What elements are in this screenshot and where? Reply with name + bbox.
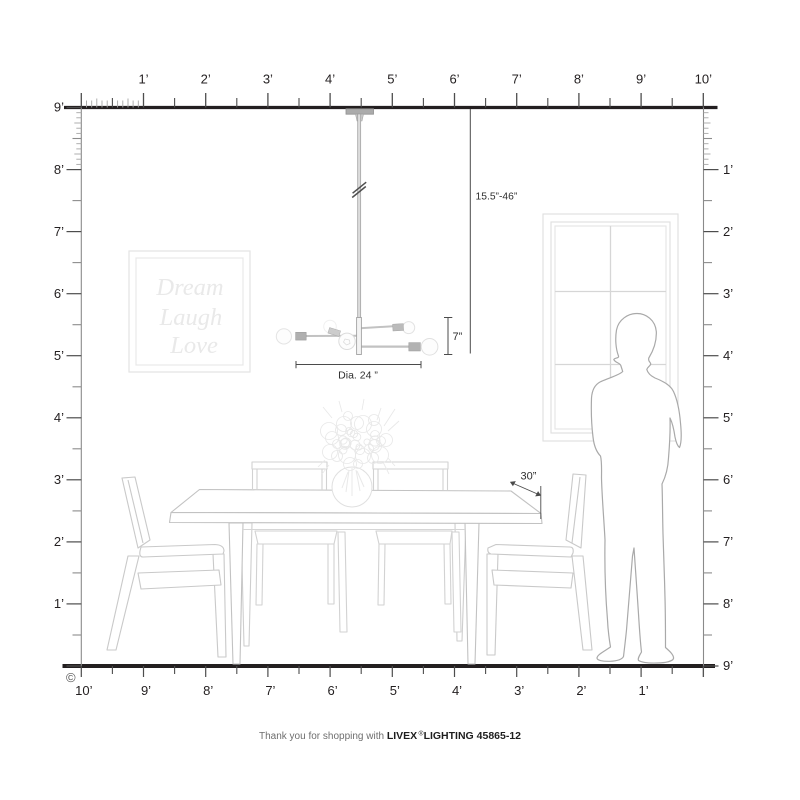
svg-text:2’: 2’ bbox=[54, 534, 64, 549]
svg-text:9’: 9’ bbox=[723, 658, 733, 673]
svg-text:8’: 8’ bbox=[723, 596, 733, 611]
svg-text:10’: 10’ bbox=[695, 72, 712, 87]
svg-text:9’: 9’ bbox=[636, 72, 646, 87]
svg-text:1’: 1’ bbox=[54, 596, 64, 611]
svg-text:9’: 9’ bbox=[54, 100, 64, 115]
svg-text:7”: 7” bbox=[453, 331, 463, 343]
svg-text:Dia. 24 ”: Dia. 24 ” bbox=[338, 370, 378, 382]
svg-text:1’: 1’ bbox=[639, 683, 649, 698]
svg-text:Laugh: Laugh bbox=[159, 304, 223, 331]
svg-text:4’: 4’ bbox=[325, 72, 335, 87]
svg-text:1’: 1’ bbox=[138, 72, 148, 87]
svg-text:3’: 3’ bbox=[723, 286, 733, 301]
svg-text:4’: 4’ bbox=[54, 410, 64, 425]
svg-text:30”: 30” bbox=[521, 471, 537, 483]
svg-text:7’: 7’ bbox=[54, 224, 64, 239]
svg-text:7’: 7’ bbox=[512, 72, 522, 87]
svg-text:9’: 9’ bbox=[141, 683, 151, 698]
svg-text:6’: 6’ bbox=[723, 472, 733, 487]
svg-text:Dream: Dream bbox=[155, 274, 223, 301]
svg-text:5’: 5’ bbox=[387, 72, 397, 87]
svg-text:5’: 5’ bbox=[54, 348, 64, 363]
svg-text:3’: 3’ bbox=[54, 472, 64, 487]
svg-text:2’: 2’ bbox=[576, 683, 586, 698]
svg-text:2’: 2’ bbox=[723, 224, 733, 239]
svg-text:7’: 7’ bbox=[265, 683, 275, 698]
svg-text:3’: 3’ bbox=[514, 683, 524, 698]
svg-text:6’: 6’ bbox=[449, 72, 459, 87]
svg-text:Thank you for shopping with LI: Thank you for shopping with LIVEX ®LIGHT… bbox=[259, 730, 521, 743]
svg-text:15.5”-46”: 15.5”-46” bbox=[476, 192, 518, 203]
svg-text:Love: Love bbox=[169, 332, 218, 359]
svg-text:3’: 3’ bbox=[263, 72, 273, 87]
svg-text:8’: 8’ bbox=[574, 72, 584, 87]
svg-text:6’: 6’ bbox=[54, 286, 64, 301]
svg-text:10’: 10’ bbox=[75, 683, 92, 698]
svg-text:4’: 4’ bbox=[452, 683, 462, 698]
svg-text:©: © bbox=[66, 670, 76, 685]
svg-text:5’: 5’ bbox=[390, 683, 400, 698]
svg-text:5’: 5’ bbox=[723, 410, 733, 425]
svg-text:7’: 7’ bbox=[723, 534, 733, 549]
svg-text:8’: 8’ bbox=[54, 162, 64, 177]
svg-text:2’: 2’ bbox=[201, 72, 211, 87]
svg-text:4’: 4’ bbox=[723, 348, 733, 363]
svg-text:6’: 6’ bbox=[328, 683, 338, 698]
svg-text:1’: 1’ bbox=[723, 162, 733, 177]
svg-text:8’: 8’ bbox=[203, 683, 213, 698]
